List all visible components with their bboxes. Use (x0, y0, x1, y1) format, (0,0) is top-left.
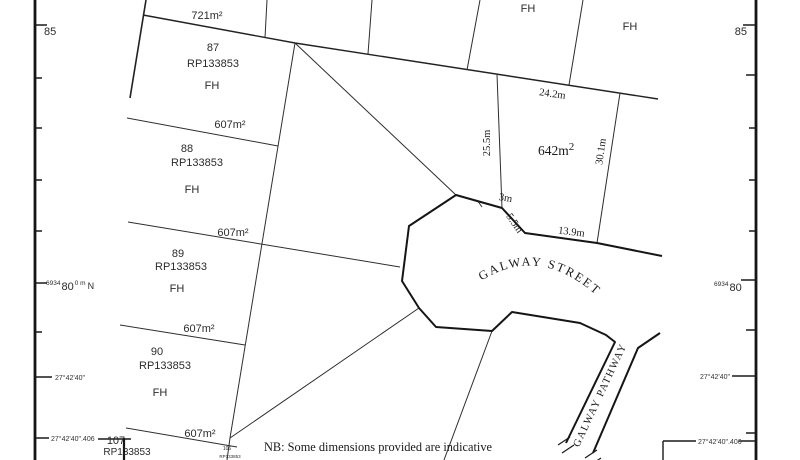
map-border-lines (35, 0, 756, 460)
grid-northing-value-right: 80 (729, 282, 741, 294)
lot89-tenure-label: FH (170, 283, 185, 295)
lot107-area-label: 607m² (184, 428, 216, 440)
lot88-plan-label: RP133853 (171, 157, 223, 169)
grid-northing-80-right: 693480 (714, 281, 742, 294)
lot642-area-exponent: 2 (569, 141, 575, 153)
lot87-plan-label: RP133853 (187, 58, 239, 70)
lot90-plan-label: RP133853 (139, 360, 191, 372)
dimension-24-2m: 24.2m (538, 87, 566, 102)
dimension-25-5m: 25.5m (482, 130, 493, 157)
dimension-3m: 3m (498, 192, 513, 205)
lot90-tenure-label: FH (153, 387, 168, 399)
lot90-number-label: 90 (151, 346, 163, 358)
grid-northing-85-right: 85 (735, 26, 747, 38)
lot87-number-label: 87 (207, 42, 219, 54)
grid-northing-sup: 0 m (75, 280, 86, 287)
lot89-area-label: 607m² (217, 227, 249, 239)
grid-northing-value: 80 (61, 281, 73, 293)
lot642-area-base: 642m (538, 143, 569, 158)
street-name-galway-street: GALWAY STREET (476, 254, 604, 298)
grid-latitude406-left: 27°42'40".406 (51, 435, 95, 443)
grid-latitude-right: 27°42'40" (700, 373, 730, 381)
note-text: NB: Some dimensions provided are indicat… (264, 440, 492, 454)
lot107-number-label: 107 (107, 435, 125, 447)
grid-northing-prefix-right: 6934 (714, 281, 729, 288)
grid-latitude-left: 27°42'40" (55, 374, 85, 382)
grid-northing-80-left: 6934800 mN (46, 280, 94, 293)
lot107-plan-label: RP133853 (103, 447, 151, 458)
lot90-area-label: 607m² (183, 323, 215, 335)
grid-northing-prefix: 6934 (46, 280, 61, 287)
lot88-tenure-label: FH (185, 184, 200, 196)
grid-north-axis: N (88, 281, 95, 291)
street-name-text: GALWAY STREET (476, 254, 604, 298)
lot642-area-label: 642m2 (538, 141, 574, 158)
grid-northing-85-left: 85 (44, 26, 56, 38)
lot106-number-label: 106 (223, 446, 232, 452)
grid-tick-marks (35, 25, 756, 460)
dimension-5-5m: 5.5m (503, 212, 524, 236)
lot88-number-label: 88 (181, 143, 193, 155)
top-lot-a-tenure-label: FH (521, 3, 536, 15)
dimension-30-1m: 30.1m (594, 138, 609, 166)
top-boundary-line (143, 15, 658, 99)
cadastral-map-view: 721m² FH FH 87 RP133853 FH 607m² 88 RP13… (0, 0, 800, 460)
lot87-west-boundary (130, 0, 146, 98)
lot89-plan-label: RP133853 (155, 261, 207, 273)
grid-latitude406-right: 27°42'40".406 (698, 438, 742, 446)
lot88-area-label: 607m² (214, 119, 246, 131)
top-lot-b-tenure-label: FH (623, 21, 638, 33)
lot89-number-label: 89 (172, 248, 184, 260)
lot87-tenure-label: FH (205, 80, 220, 92)
lot106-plan-label: RP133853 (219, 454, 241, 459)
cadastral-map: 721m² FH FH 87 RP133853 FH 607m² 88 RP13… (0, 0, 800, 460)
lot721-area-label: 721m² (191, 10, 223, 22)
street-outline (402, 195, 662, 443)
